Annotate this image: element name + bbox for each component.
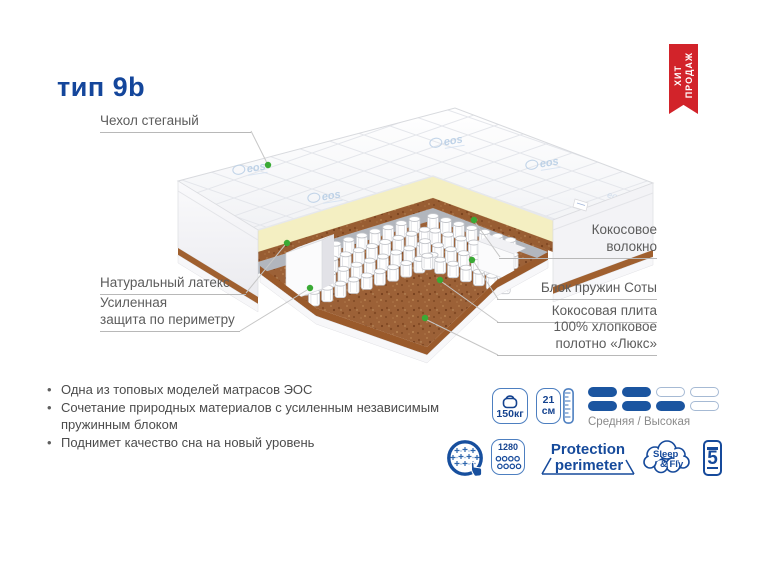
svg-text:Protection: Protection xyxy=(551,441,625,458)
max-weight-value: 150кг xyxy=(496,409,523,420)
svg-text:perimeter: perimeter xyxy=(555,457,624,474)
firmness-pill xyxy=(588,401,617,411)
firmness-pill xyxy=(588,387,617,397)
firmness-pill xyxy=(656,387,685,397)
firmness-label: Средняя / Высокая xyxy=(588,416,690,428)
label-spring-block: Блок пружин Соты xyxy=(497,279,657,300)
firmness-pill xyxy=(690,387,719,397)
kettlebell-icon xyxy=(499,391,521,409)
max-weight-badge: 150кг xyxy=(492,388,528,424)
spring-surface-icon xyxy=(446,439,486,481)
feature-bullets: Одна из топовых моделей матрасов ЭОС Соч… xyxy=(44,381,444,451)
bullet-item: Сочетание природных материалов с усиленн… xyxy=(44,399,444,434)
svg-text:& Fly: & Fly xyxy=(660,459,684,470)
firmness-pill xyxy=(622,387,651,397)
firmness-pill xyxy=(690,401,719,411)
protection-perimeter-badge: Protection perimeter xyxy=(538,441,638,479)
bullet-item: Поднимет качество сна на новый уровень xyxy=(44,434,444,452)
spring-count-badge: 1280 xyxy=(491,439,525,475)
warranty-badge: 5 xyxy=(703,440,722,476)
firmness-row xyxy=(588,401,719,411)
spring-count-value: 1280 xyxy=(498,442,518,453)
height-badge: 21 см xyxy=(536,388,561,424)
bullet-item: Одна из топовых моделей матрасов ЭОС xyxy=(44,381,444,399)
height-unit: см xyxy=(542,406,556,417)
warranty-value: 5 xyxy=(707,450,718,467)
firmness-row xyxy=(588,387,719,397)
warranty-bar-bottom xyxy=(707,467,718,470)
page: тип 9b ХИТ ПРОДАЖ xyxy=(0,0,768,568)
firmness-pill xyxy=(656,401,685,411)
label-perimeter-protection: Усиленная защита по периметру xyxy=(100,294,240,332)
spring-count-dots xyxy=(493,453,523,474)
label-natural-latex: Натуральный латекс xyxy=(100,274,246,295)
label-quilted-cover: Чехол стеганый xyxy=(100,112,251,133)
label-coconut-fiber: Кокосовое волокно xyxy=(499,221,657,259)
label-cotton-fabric: 100% хлопковое полотно «Люкс» xyxy=(497,318,657,356)
firmness-scale xyxy=(588,387,719,415)
ruler-icon xyxy=(563,388,574,424)
firmness-pill xyxy=(622,401,651,411)
brand-cloud-logo: Sleep & Fly xyxy=(640,440,692,478)
